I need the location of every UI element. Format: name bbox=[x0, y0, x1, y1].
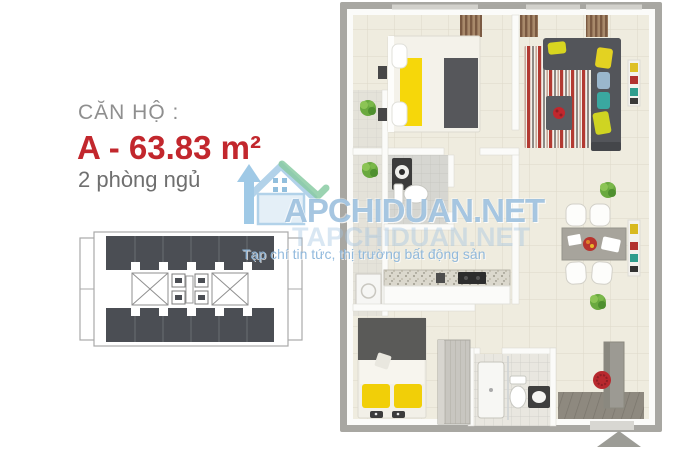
entrance-door bbox=[590, 421, 634, 430]
bed-1 bbox=[388, 36, 480, 132]
nightstand bbox=[378, 66, 387, 79]
sofa-pillow-yellow bbox=[595, 47, 614, 69]
dining-chair bbox=[591, 261, 613, 285]
stove bbox=[458, 272, 486, 284]
key-plan-stairwell-left bbox=[132, 273, 168, 305]
kitchen-counter-top bbox=[384, 270, 510, 286]
coffee-table bbox=[546, 96, 572, 130]
page-root: CĂN HỘ : A - 63.83 m² 2 phòng ngủ bbox=[0, 0, 675, 450]
unit-area-title: A - 63.83 m² bbox=[77, 129, 261, 167]
key-plan-stairwell-right bbox=[212, 273, 248, 305]
bathroom-2 bbox=[474, 354, 550, 426]
wardrobe bbox=[438, 340, 470, 424]
wall-shelf-living bbox=[628, 60, 640, 106]
building-key-plan bbox=[76, 228, 306, 350]
vanity-sink bbox=[528, 386, 550, 408]
nightstand bbox=[378, 108, 387, 121]
unit-label: CĂN HỘ : bbox=[78, 101, 179, 125]
dining-table bbox=[562, 228, 626, 260]
pillow bbox=[392, 44, 407, 68]
bedroom-1 bbox=[378, 36, 480, 132]
dining-chair bbox=[566, 204, 586, 226]
service-balcony bbox=[353, 90, 384, 316]
plant-icon bbox=[590, 294, 606, 310]
bed-blanket-dark bbox=[358, 318, 426, 360]
plant-icon bbox=[600, 182, 616, 198]
kitchen-sink bbox=[436, 273, 445, 283]
wall-shelf-dining bbox=[628, 220, 640, 276]
plant-icon bbox=[360, 100, 376, 116]
dining-chair bbox=[590, 204, 610, 226]
entrance-arrow-icon bbox=[597, 431, 641, 447]
wood-floor bbox=[558, 392, 644, 419]
yellow-pillow bbox=[362, 384, 390, 408]
bathroom-1 bbox=[388, 155, 448, 224]
shower bbox=[478, 356, 508, 420]
apartment-floor-plan bbox=[340, 2, 662, 432]
bedroom-2 bbox=[358, 318, 426, 418]
sofa-pillow-yellow bbox=[547, 41, 566, 55]
pillow bbox=[392, 102, 407, 126]
sofa-pillow-teal bbox=[597, 92, 610, 109]
window-living-2 bbox=[586, 5, 642, 10]
dining-chair bbox=[565, 261, 586, 284]
curtain-icon bbox=[586, 15, 608, 37]
bed-2 bbox=[358, 318, 426, 418]
key-plan-units-bottom bbox=[106, 307, 274, 342]
sofa-pillow-blue bbox=[597, 72, 610, 89]
key-plan-units-top bbox=[106, 236, 274, 271]
toilet bbox=[510, 376, 526, 408]
curtain-icon bbox=[460, 15, 482, 37]
toilet bbox=[394, 184, 428, 204]
bed-throw bbox=[444, 58, 478, 128]
kitchen-counter-front bbox=[384, 286, 510, 304]
plant-icon bbox=[362, 162, 378, 178]
window-bedroom-1 bbox=[392, 5, 478, 10]
yellow-pillow bbox=[394, 384, 422, 408]
kitchen bbox=[384, 270, 510, 304]
curtain-icon bbox=[520, 15, 538, 37]
wreath-decor bbox=[593, 371, 611, 389]
window-living-1 bbox=[526, 5, 580, 10]
flower-centerpiece bbox=[553, 107, 565, 119]
fruit-bowl bbox=[583, 237, 597, 251]
unit-bedrooms: 2 phòng ngủ bbox=[78, 167, 200, 193]
